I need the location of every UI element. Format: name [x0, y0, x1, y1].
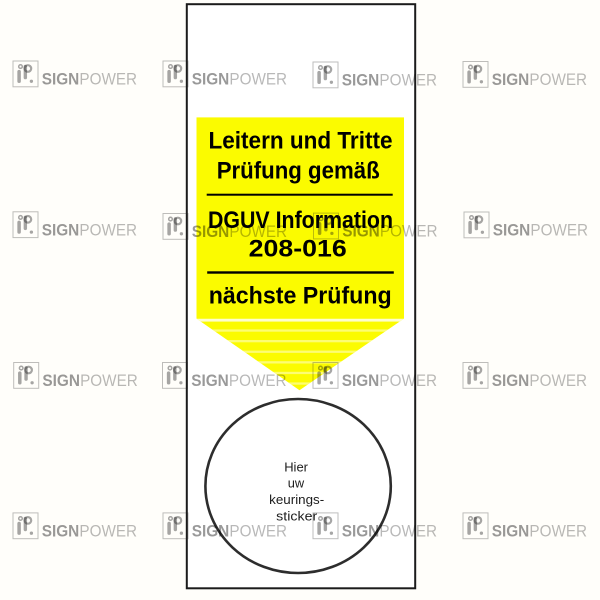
- svg-text:Prüfung gemäß: Prüfung gemäß: [217, 157, 380, 184]
- svg-text:nächste Prüfung: nächste Prüfung: [209, 283, 392, 310]
- svg-text:uw: uw: [288, 476, 305, 491]
- svg-text:Leitern und Tritte: Leitern und Tritte: [209, 127, 393, 154]
- svg-text:keurings-: keurings-: [269, 492, 324, 507]
- svg-text:Hier: Hier: [284, 460, 308, 475]
